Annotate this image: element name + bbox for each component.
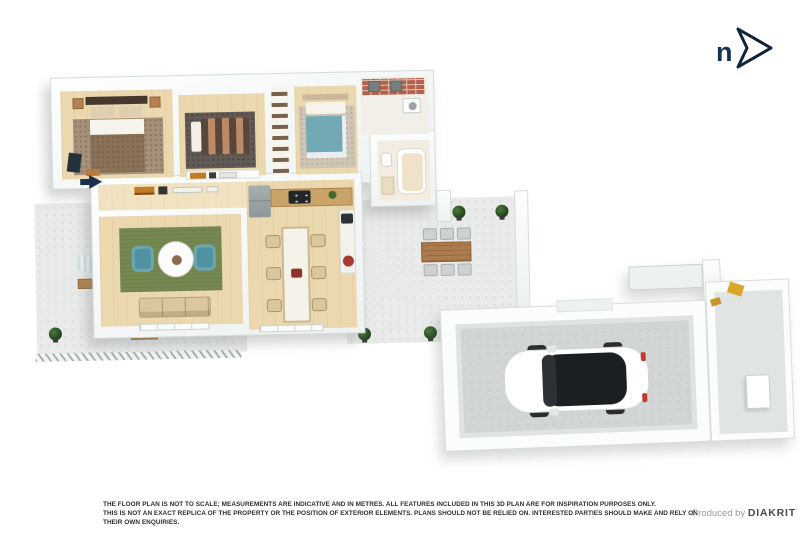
bedroom-3-bed — [302, 94, 349, 163]
bathtub-basin — [402, 153, 424, 191]
floorplan-canvas: n THE FLOOR PLAN IS NOT TO SCALE; MEASUR… — [0, 0, 800, 539]
fridge-door-split — [249, 200, 271, 201]
car-windshield — [542, 354, 558, 406]
bathtub — [397, 148, 427, 195]
coffee-machine-icon — [341, 213, 353, 223]
bed-headboard — [85, 96, 147, 105]
table-centerpiece-icon — [172, 255, 182, 265]
bed-duvet — [90, 134, 145, 173]
outdoor-chair — [457, 227, 471, 239]
sofa — [139, 296, 211, 318]
car-taillight-icon — [642, 393, 647, 402]
tray-icon — [206, 186, 218, 192]
disclaimer-line-2: THIS IS NOT AN EXACT REPLICA OF THE PROP… — [103, 510, 703, 528]
bed-sheet — [90, 119, 144, 135]
bed-pillow — [119, 106, 143, 118]
credit-prefix: Produced by — [692, 508, 748, 519]
bed-pillow — [191, 122, 202, 152]
house — [38, 70, 446, 348]
car-taillight-icon — [641, 352, 646, 361]
compass-north-label: n — [716, 39, 733, 66]
dining-chair — [265, 235, 280, 248]
nightstand — [72, 98, 83, 109]
dining-chair — [311, 266, 326, 279]
disclaimer-line-1: THE FLOOR PLAN IS NOT TO SCALE; MEASUREM… — [103, 501, 703, 510]
storage-room — [705, 278, 795, 441]
dining-chair — [310, 234, 325, 247]
storage-floor — [714, 290, 787, 435]
bedroom-2-bed — [189, 118, 250, 155]
nightstand — [149, 96, 160, 107]
laundry-sink — [368, 81, 380, 92]
storage-cabinet — [745, 374, 770, 409]
table-centerpiece-icon — [291, 269, 302, 278]
producer-credit: Produced by DIAKRIT — [692, 507, 796, 519]
compass: n — [716, 26, 774, 70]
white-car — [501, 340, 652, 420]
washer-drum-icon — [409, 102, 417, 110]
dining-chair — [312, 298, 327, 311]
garage-parapet — [628, 264, 703, 291]
fridge — [248, 185, 271, 217]
tray-icon — [172, 187, 202, 194]
bed-headboard — [302, 94, 348, 101]
teal-armchair — [194, 244, 217, 270]
dining-chair — [266, 267, 281, 280]
entry-arrow-icon — [80, 175, 102, 189]
bookshelf — [186, 169, 260, 180]
bed-pillow — [306, 102, 346, 115]
garage-wing — [436, 250, 800, 462]
teal-armchair — [132, 246, 155, 272]
laundry-sink — [390, 80, 402, 91]
books-icon — [134, 187, 154, 195]
wardrobe-clothes — [271, 89, 289, 173]
dining-chair — [267, 299, 282, 312]
bed-duvet-striped — [201, 118, 250, 155]
front-door-opening — [67, 153, 82, 173]
north-arrow-icon — [736, 26, 774, 70]
toilet — [381, 153, 392, 167]
bathroom-vanity — [381, 177, 394, 195]
bed-duvet-teal — [306, 116, 347, 159]
master-bed — [85, 96, 149, 173]
decor-item-icon — [158, 186, 167, 194]
hall-console — [134, 184, 218, 196]
car-mirror-icon — [547, 345, 556, 352]
disclaimer-text: THE FLOOR PLAN IS NOT TO SCALE; MEASUREM… — [103, 501, 703, 527]
kitchen-window — [259, 324, 323, 332]
living-window — [139, 322, 209, 330]
credit-brand: DIAKRIT — [748, 507, 796, 519]
kitchen-bench — [270, 187, 352, 207]
garage-door-opening — [556, 298, 612, 312]
cooktop — [288, 190, 310, 203]
tray-icon — [219, 172, 237, 178]
books-icon — [190, 173, 206, 179]
car-mirror-icon — [550, 408, 559, 415]
books-icon — [209, 172, 216, 178]
washing-machine — [403, 98, 421, 113]
bed-pillow — [91, 106, 115, 118]
